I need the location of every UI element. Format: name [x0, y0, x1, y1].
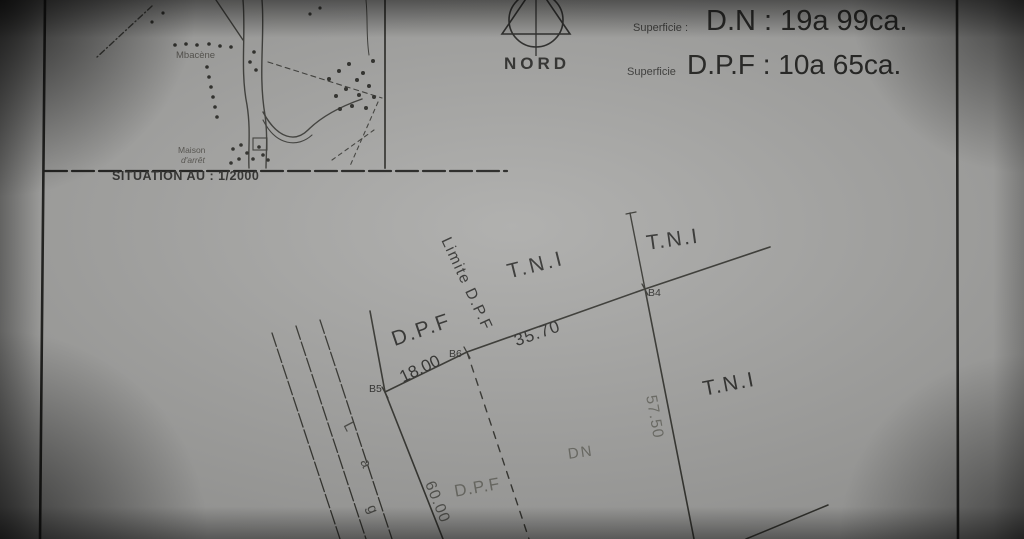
situation-map-sketch — [96, 0, 385, 168]
zone-dn-label: DN — [567, 443, 595, 461]
superficie-dn-value: D.N : 19a 99ca. — [706, 7, 908, 36]
map-village-label: Mbacène — [176, 51, 215, 61]
point-b6-label: B6 — [449, 349, 462, 360]
north-compass-icon — [502, 0, 570, 56]
plan-content: Mbacène Maison d'arrêt SITUATION AU : 1/… — [0, 0, 1024, 539]
page-frame-lines — [40, 0, 958, 539]
superficie-dpf-label: Superficie — [627, 67, 676, 78]
superficie-dpf-value: D.P.F : 10a 65ca. — [687, 51, 901, 79]
situation-map-caption: SITUATION AU : 1/2000 — [112, 170, 259, 183]
map-maison-label-line1: Maison — [178, 146, 205, 155]
north-label: NORD — [504, 55, 570, 72]
point-b4-label: B4 — [648, 288, 661, 299]
point-b5-label: B5 — [369, 384, 382, 395]
map-maison-label-line2: d'arrêt — [181, 156, 205, 165]
scanned-survey-plan: Mbacène Maison d'arrêt SITUATION AU : 1/… — [0, 0, 1024, 539]
superficie-dn-label: Superficie : — [633, 23, 688, 34]
